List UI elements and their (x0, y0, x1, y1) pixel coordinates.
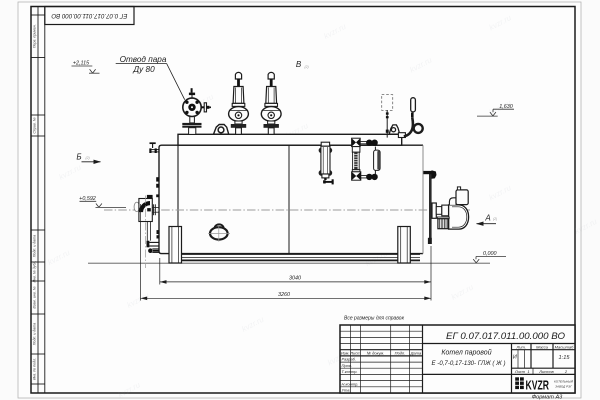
svg-text:Лист: Лист (514, 369, 526, 374)
svg-text:Взам. инв. №: Взам. инв. № (33, 286, 37, 308)
svg-text:Подп.: Подп. (395, 350, 406, 355)
svg-text:Е -0,7-0,17-130- ГЛЖ ( Ж ): Е -0,7-0,17-130- ГЛЖ ( Ж ) (432, 360, 506, 367)
svg-text:Перв. примен.: Перв. примен. (33, 24, 37, 48)
svg-text:Листов: Листов (538, 369, 554, 374)
svg-text:+0,592: +0,592 (79, 196, 96, 202)
svg-text:Разраб.: Разраб. (342, 357, 356, 362)
svg-text:В: В (296, 60, 302, 69)
svg-text:1: 1 (527, 369, 529, 374)
svg-text:(2): (2) (493, 217, 497, 221)
svg-text:1:15: 1:15 (559, 355, 571, 361)
svg-text:3260: 3260 (278, 292, 290, 298)
svg-text:Формат А3: Формат А3 (532, 394, 563, 400)
svg-text:Дата: Дата (410, 350, 422, 355)
svg-text:А: А (484, 213, 490, 222)
svg-text:Справ. №: Справ. № (33, 117, 37, 133)
svg-text:Инв. № подл.: Инв. № подл. (33, 358, 37, 380)
svg-text:(2): (2) (86, 156, 90, 160)
svg-text:Утв.: Утв. (342, 388, 351, 393)
svg-text:Масса: Масса (536, 344, 549, 349)
svg-text:Б: Б (76, 153, 81, 162)
svg-text:ЕГ 0.07.017.011.00.000 ВО: ЕГ 0.07.017.011.00.000 ВО (446, 330, 566, 341)
svg-text:Подп. и дата: Подп. и дата (33, 235, 37, 258)
svg-text:КОТЕЛЬНЫЙ: КОТЕЛЬНЫЙ (554, 380, 574, 384)
svg-text:Т.контр.: Т.контр. (342, 369, 358, 374)
svg-text:Инв. № дубл.: Инв. № дубл. (33, 260, 37, 282)
svg-text:Лист: Лист (349, 350, 361, 355)
svg-text:ЗАВОД РЭГ: ЗАВОД РЭГ (555, 384, 572, 388)
svg-text:Котел паровой: Котел паровой (441, 349, 491, 357)
svg-text:Ду 80: Ду 80 (132, 65, 155, 74)
svg-text:Пров.: Пров. (342, 363, 353, 368)
svg-text:1,630: 1,630 (499, 104, 513, 110)
svg-text:0,000: 0,000 (483, 251, 497, 257)
svg-text:Изм.: Изм. (341, 350, 350, 355)
svg-text:KVZR: KVZR (526, 377, 550, 392)
svg-text:Все размеры для справок: Все размеры для справок (344, 316, 405, 322)
svg-text:Масштаб: Масштаб (555, 344, 574, 349)
svg-text:Подп. и дата: Подп. и дата (33, 323, 37, 346)
svg-text:Н.контр.: Н.контр. (342, 382, 359, 387)
svg-text:Лит.: Лит. (516, 344, 526, 349)
svg-text:№ докум.: № докум. (367, 350, 385, 355)
svg-text:Отвод пара: Отвод пара (120, 55, 167, 64)
svg-text:(2): (2) (305, 65, 309, 69)
svg-text:3040: 3040 (289, 276, 301, 282)
svg-text:И: И (513, 355, 517, 361)
svg-text:ЕГ 0.07.017.011.00.000 ВО: ЕГ 0.07.017.011.00.000 ВО (51, 12, 128, 19)
svg-text:+2,115: +2,115 (73, 61, 90, 67)
